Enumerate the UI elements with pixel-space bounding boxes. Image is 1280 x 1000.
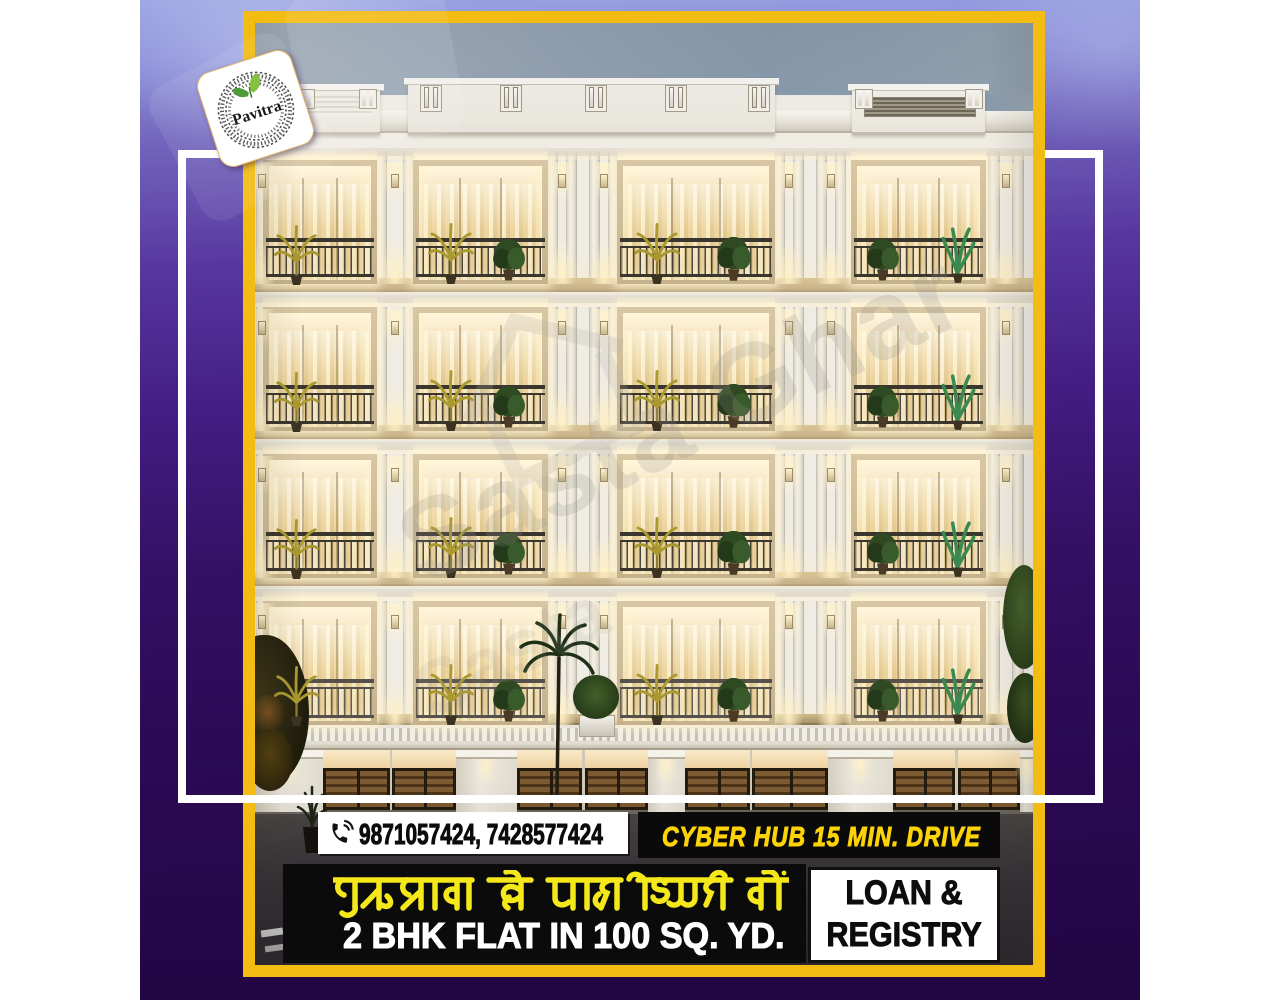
svg-text:Pavitra: Pavitra [230, 97, 283, 129]
